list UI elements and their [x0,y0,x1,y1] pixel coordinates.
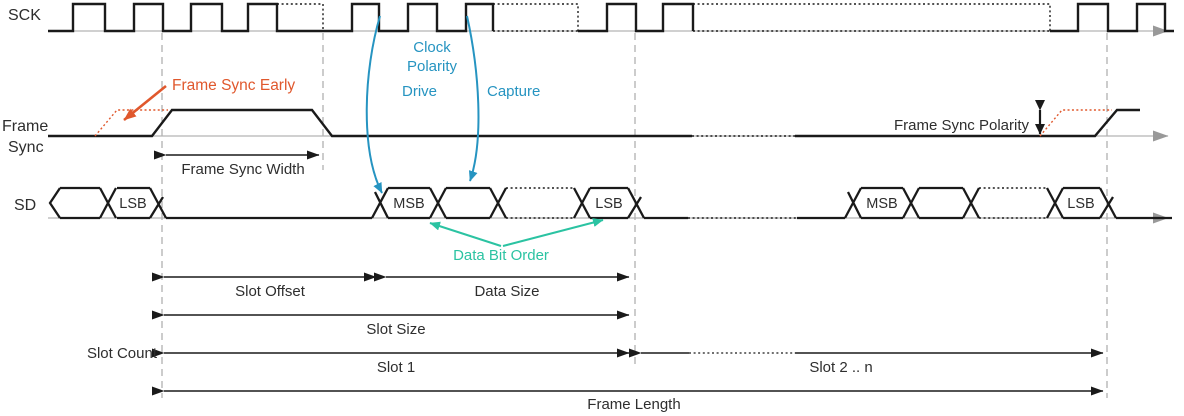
slot-1-label: Slot 1 [377,359,415,376]
capture-label: Capture [487,83,540,100]
drive-label: Drive [402,83,437,100]
sd-cell-slot2-lsb-label: LSB [1067,196,1094,212]
sd-label: SD [14,197,36,214]
sd-cell-pre-lsb-label: LSB [119,196,146,212]
sd-cell-slot1-msb-label: MSB [393,196,424,212]
slot-size-label: Slot Size [366,321,425,338]
clock-polarity-label-line2: Polarity [407,58,458,75]
sck-label: SCK [8,7,41,24]
labels: SCK Frame Sync SD Frame Sync Early Clock… [2,7,1095,413]
slot-2n-label: Slot 2 .. n [809,359,872,376]
timing-diagram-svg: SCK Frame Sync SD Frame Sync Early Clock… [0,0,1184,416]
frame-sync-early-label: Frame Sync Early [172,77,295,94]
frame-length-label: Frame Length [587,396,680,413]
frame-sync-label-line2: Sync [8,139,44,156]
sck-solid-path [48,4,1174,31]
sd-cell-slot1-lsb-label: LSB [595,196,622,212]
dimension-arrows [164,155,1103,391]
slot-count-label: Slot Count [87,345,158,362]
drive-arrow [367,16,382,193]
frame-sync-polarity-label: Frame Sync Polarity [894,117,1030,134]
sd-cell-slot2-msb-label: MSB [866,196,897,212]
data-size-label: Data Size [474,283,539,300]
clock-polarity-label-line1: Clock [413,39,451,56]
frame-sync-label-line1: Frame [2,118,48,135]
sck-waveform [48,4,1174,31]
data-bit-order-label: Data Bit Order [453,247,549,264]
data-bit-order-arrow-msb [430,223,501,246]
frame-sync-width-label: Frame Sync Width [181,161,304,178]
timing-diagram: SCK Frame Sync SD Frame Sync Early Clock… [0,0,1184,416]
data-bit-order-arrow-lsb [503,220,603,246]
slot-offset-label: Slot Offset [235,283,306,300]
capture-arrow [467,16,478,181]
frame-sync-early-arrow [124,86,166,120]
